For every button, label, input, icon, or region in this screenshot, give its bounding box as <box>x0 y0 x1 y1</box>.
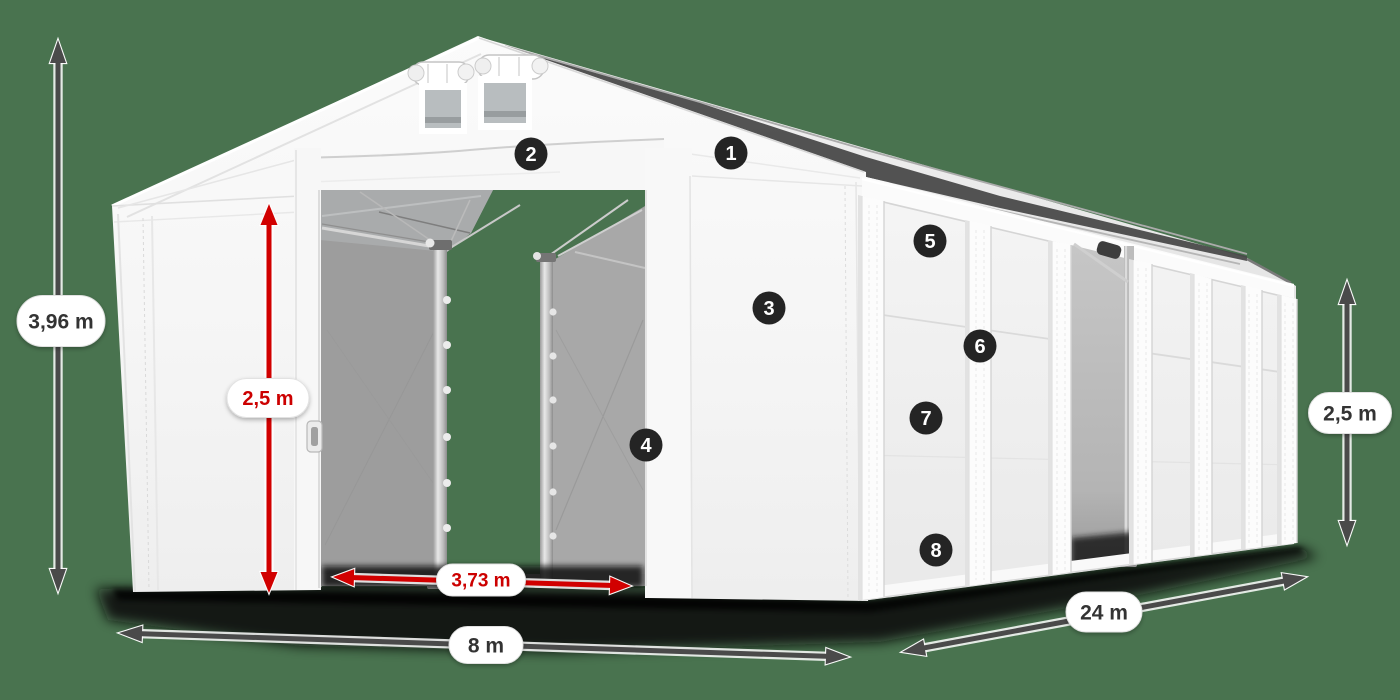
svg-text:8: 8 <box>930 540 941 562</box>
svg-text:2,5 m: 2,5 m <box>242 388 293 410</box>
svg-text:3: 3 <box>763 298 774 320</box>
svg-text:4: 4 <box>640 435 652 457</box>
svg-text:3,73 m: 3,73 m <box>451 571 510 592</box>
svg-text:6: 6 <box>974 336 985 358</box>
svg-text:5: 5 <box>924 231 935 253</box>
svg-text:8 m: 8 m <box>468 634 504 657</box>
svg-text:7: 7 <box>920 408 931 430</box>
svg-text:1: 1 <box>725 143 736 165</box>
svg-text:2,5 m: 2,5 m <box>1323 402 1377 425</box>
svg-text:24 m: 24 m <box>1080 601 1128 624</box>
svg-text:2: 2 <box>525 144 536 166</box>
svg-text:3,96 m: 3,96 m <box>28 310 93 333</box>
